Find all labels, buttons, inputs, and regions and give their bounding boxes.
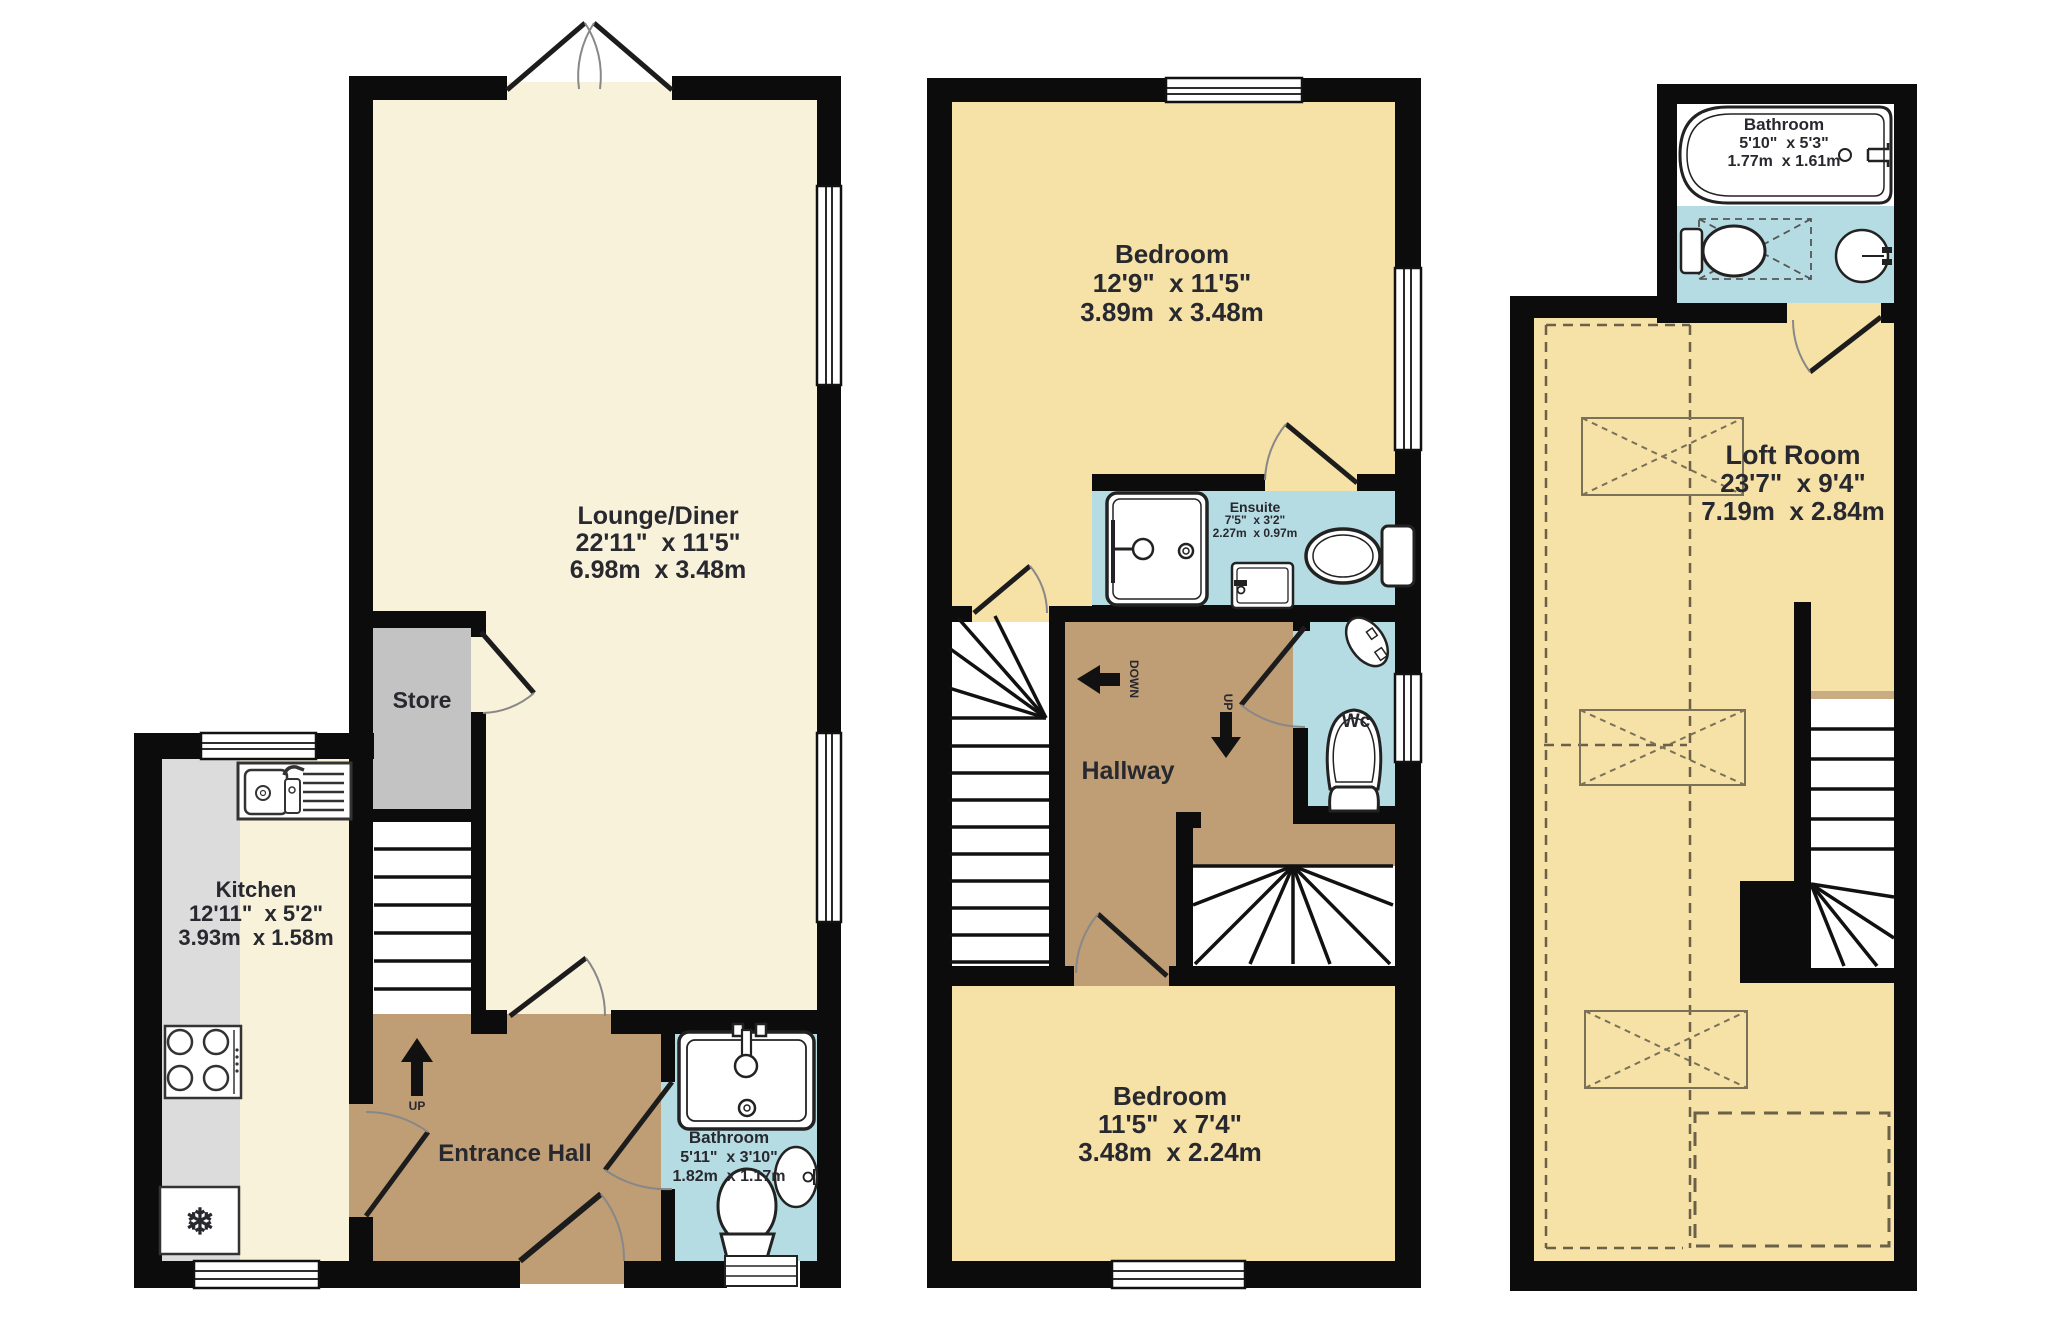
svg-text:5'11" x 3'10": 5'11" x 3'10"	[680, 1149, 778, 1166]
svg-text:5'10" x 5'3": 5'10" x 5'3"	[1739, 135, 1829, 152]
svg-text:Wc: Wc	[1342, 711, 1371, 732]
svg-text:Lounge/Diner: Lounge/Diner	[577, 502, 738, 530]
svg-text:UP: UP	[1221, 694, 1235, 711]
svg-text:12'9" x 11'5": 12'9" x 11'5"	[1093, 268, 1251, 298]
svg-text:Bathroom: Bathroom	[689, 1128, 769, 1147]
svg-text:6.98m x 3.48m: 6.98m x 3.48m	[570, 556, 747, 584]
svg-text:Bedroom: Bedroom	[1113, 1081, 1227, 1111]
svg-text:UP: UP	[409, 1099, 426, 1113]
svg-text:Loft Room: Loft Room	[1726, 440, 1861, 470]
svg-text:Hallway: Hallway	[1081, 757, 1174, 785]
svg-text:3.48m x 2.24m: 3.48m x 2.24m	[1078, 1137, 1262, 1167]
svg-text:Bathroom: Bathroom	[1744, 115, 1824, 134]
svg-text:7'5" x 3'2": 7'5" x 3'2"	[1225, 513, 1285, 527]
svg-text:11'5" x 7'4": 11'5" x 7'4"	[1098, 1109, 1242, 1139]
svg-text:12'11" x 5'2": 12'11" x 5'2"	[189, 901, 323, 926]
svg-text:❄: ❄	[185, 1201, 215, 1242]
svg-text:Entrance Hall: Entrance Hall	[438, 1140, 591, 1167]
svg-text:3.93m x 1.58m: 3.93m x 1.58m	[178, 925, 333, 950]
svg-text:22'11" x 11'5": 22'11" x 11'5"	[576, 529, 741, 557]
svg-text:1.77m x 1.61m: 1.77m x 1.61m	[1728, 153, 1841, 170]
svg-text:3.89m x 3.48m: 3.89m x 3.48m	[1080, 297, 1264, 327]
svg-text:23'7" x 9'4": 23'7" x 9'4"	[1720, 468, 1865, 498]
svg-text:Bedroom: Bedroom	[1115, 239, 1229, 269]
svg-text:DOWN: DOWN	[1127, 660, 1141, 698]
svg-text:7.19m x 2.84m: 7.19m x 2.84m	[1701, 496, 1885, 526]
svg-text:1.82m x 1.17m: 1.82m x 1.17m	[673, 1168, 786, 1185]
svg-text:2.27m x 0.97m: 2.27m x 0.97m	[1213, 526, 1298, 540]
svg-text:Kitchen: Kitchen	[216, 877, 297, 902]
svg-text:Store: Store	[393, 687, 452, 713]
